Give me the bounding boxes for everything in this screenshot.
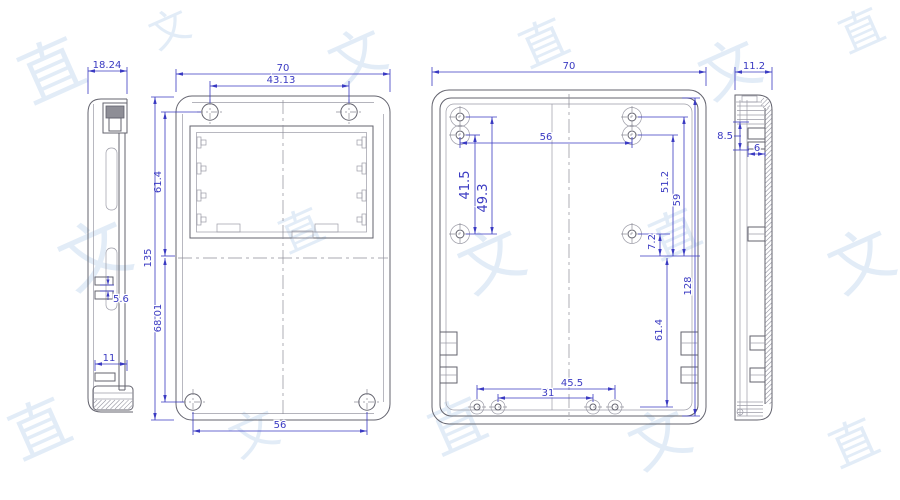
dim-back-bottom-span-b: 31 [542,388,555,399]
dim-back-boss-span-b: 49.3 [476,184,491,213]
dim-front-bottom-hole-span: 56 [274,420,287,431]
dim-back-boss-span-a: 41.5 [458,171,473,200]
dim-front-overall-width: 70 [277,63,290,74]
snap-tab [95,291,113,299]
dim-sideright-overall-width: 11.2 [743,61,765,72]
view-side-right: 11.2 8.5 6 [717,61,772,420]
snap-tab [95,373,115,381]
dim-front-lower-section: 68.01 [153,304,164,333]
cad-drawing-canvas: 直 文 文 直 文 直 文 直 文 直 文 直 文 直 文 直 [0,0,900,500]
t-slots-left [197,137,206,225]
bottom-hole [468,400,486,414]
bottom-hole [489,400,507,414]
dim-front-top-hole-span: 43.13 [267,75,296,86]
dim-back-bottom-span-a: 45.5 [561,378,583,389]
bottom-hole [606,400,624,414]
side-boss [681,332,698,355]
screw-hole [354,389,380,415]
snap-tab [95,277,113,285]
bottom-notch [217,224,240,232]
dim-sideleft-tab-gap: 5.6 [113,294,129,305]
foot-hatch [94,400,132,409]
bottom-hole [584,400,602,414]
bottom-notch [315,224,338,232]
dim-sideright-depth-a: 8.5 [717,131,733,142]
recess-inner [197,133,367,233]
dim-front-overall-height: 135 [143,248,154,267]
dim-back-lower-height: 61.4 [654,319,665,341]
recess-outer [190,126,373,238]
top-clip-hatch [106,106,124,118]
side-slot [106,148,117,210]
clip [748,128,765,139]
dim-back-right-a: 51.2 [660,171,671,193]
dim-back-top-hole-span: 56 [540,132,553,143]
dim-sideleft-clip-width: 11 [103,353,116,364]
t-slots-right [357,137,366,225]
dim-back-right-b: 59 [672,194,683,207]
dim-back-inner-height: 128 [683,276,694,295]
dim-sideright-tab-width: 6 [754,143,760,154]
dim-back-overall-width: 70 [563,61,576,72]
side-boss [440,332,457,355]
view-front: 70 43.13 61.4 135 68.01 56 [143,63,390,435]
drawing-svg: 18.24 5.6 11 [0,0,900,500]
view-side-left: 18.24 5.6 11 [88,60,133,412]
dim-sideleft-overall-width: 18.24 [93,60,122,71]
view-back: 70 56 41.5 49.3 51.2 59 7.2 128 [432,61,706,424]
dim-back-right-c: 7.2 [647,234,658,250]
